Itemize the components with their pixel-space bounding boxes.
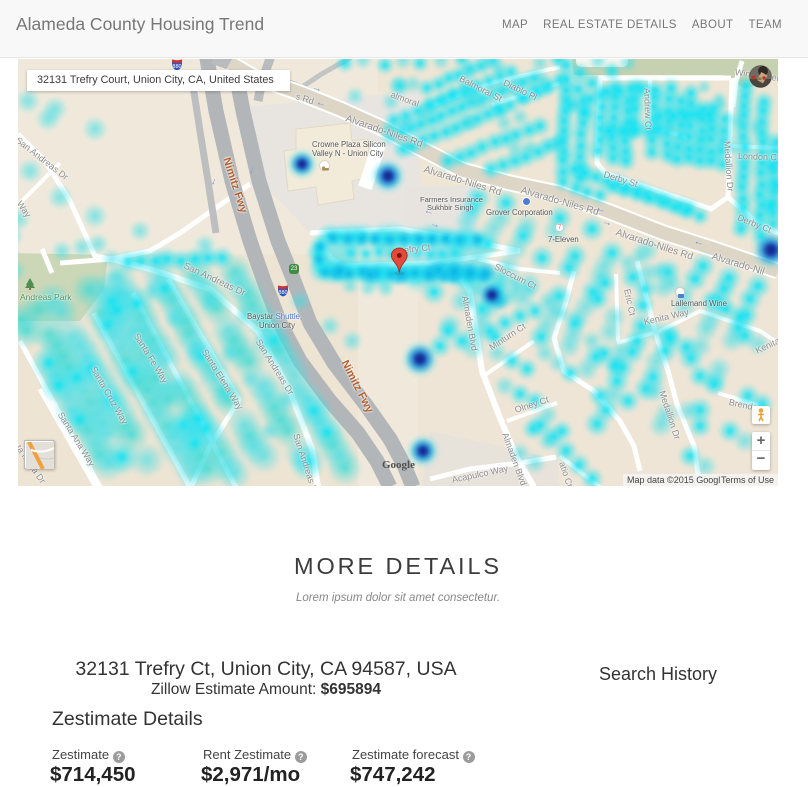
svg-text:880: 880 [278, 290, 287, 296]
